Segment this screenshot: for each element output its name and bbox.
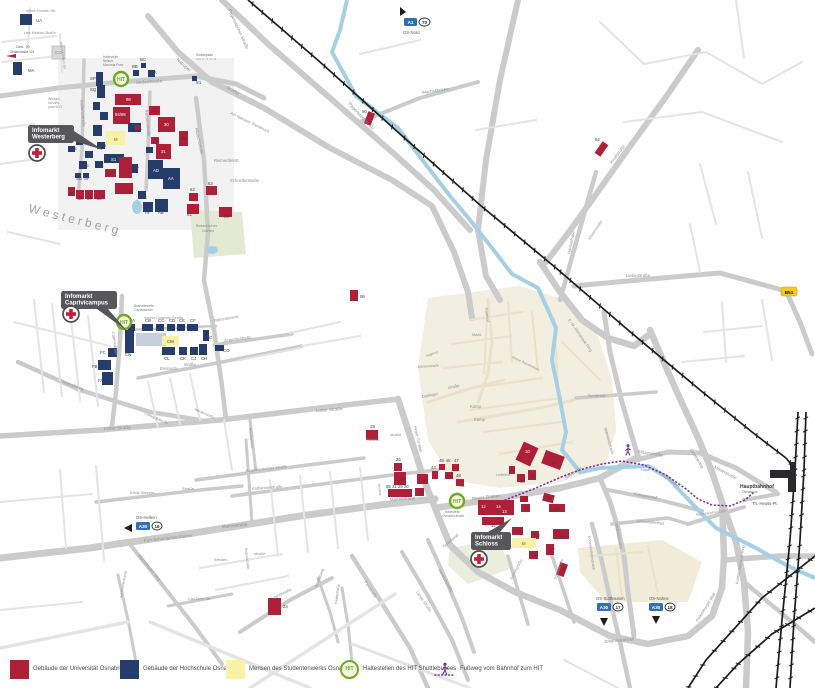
building-hs	[13, 62, 22, 75]
building-label: 02	[523, 496, 528, 501]
legend-item-mensa: Mensen des Studentenwerks Osnabrück	[226, 660, 357, 679]
building-label: BC	[140, 57, 146, 62]
building-label: AC	[141, 195, 147, 200]
motorway-exit-name: OS-Nahne	[649, 596, 669, 601]
building-uni	[394, 463, 402, 471]
map-canvas: UAMAICOSPBBBCBAS1SQ9892SN94/95SLSJSKMSHS…	[0, 0, 815, 688]
mensa-color-swatch	[226, 660, 245, 679]
street-label: Kamp	[470, 404, 482, 409]
street-label: Mandela-Platz	[103, 63, 124, 67]
building-uni	[350, 290, 358, 301]
building-label: 09	[510, 468, 515, 473]
building-label: SE	[98, 163, 104, 168]
building-label: S1	[111, 157, 117, 162]
street-label: Sophie-Charlotte-Straße	[144, 316, 183, 320]
building-label: 13	[502, 509, 507, 514]
street-label: Sedanplatz	[196, 53, 213, 57]
building-uni	[432, 471, 438, 479]
legend-label: Gebäude der Universität Osnabrück	[33, 666, 129, 672]
building-label: 39	[69, 191, 74, 196]
building-label: 11	[491, 523, 496, 528]
building-label: 03	[525, 506, 530, 511]
street-label: Geb. 70	[16, 45, 30, 49]
autobahn-badge-text: A30	[139, 524, 148, 529]
building-label: SF	[84, 176, 90, 181]
street-label: Liebigstraße	[626, 273, 651, 278]
street-label: Th.-Heuss-Pl.	[752, 501, 778, 506]
building-hs	[125, 330, 134, 353]
street-label: Roland-	[366, 437, 381, 442]
railway-tick	[777, 449, 778, 454]
legend-item-walk: Fußweg vom Bahnhof zum HIT	[434, 661, 543, 677]
building-label: 63	[208, 181, 213, 186]
building-label: 37	[87, 196, 92, 201]
pond	[132, 200, 142, 214]
street-label: Sedanstraße 115	[10, 50, 34, 54]
building-label: MA	[28, 68, 35, 73]
motorway-exit-name: OS-Nord	[403, 30, 420, 35]
building-label: 17	[550, 547, 555, 552]
building-label: 34	[153, 138, 158, 143]
building-uni	[268, 598, 281, 615]
infomarkt-tooltip-text: Westerberg	[32, 135, 65, 141]
building-label: AD	[153, 168, 159, 173]
building-label: SE	[71, 146, 77, 151]
street-label: Schoellerstraße	[230, 178, 260, 183]
building-label: 04	[555, 506, 560, 511]
building-label: 46	[446, 474, 451, 479]
exit-number-text: 18	[667, 605, 673, 610]
autobahn-badge-text: A30	[600, 605, 609, 610]
street-label: Garten	[202, 228, 214, 233]
building-label: FA	[98, 378, 103, 383]
building-label: 35	[128, 189, 133, 194]
building-label: UA	[36, 18, 42, 23]
motorway-exit-name: OS-Sutthausen	[596, 596, 625, 601]
building-label: SQ	[90, 87, 97, 92]
street-label: Ledenhof	[496, 473, 510, 477]
b51-badge-text: B51	[785, 290, 794, 296]
street-label: Schillerstr.	[588, 393, 606, 398]
building-label: 43	[431, 465, 436, 470]
exit-number-text: 17	[615, 605, 621, 610]
building-label: 55 21 25 20	[386, 484, 409, 489]
building-uni	[206, 186, 217, 195]
building-label: CG	[206, 335, 213, 340]
autobahn-badge-text: A1	[408, 20, 414, 25]
building-label: 30	[164, 122, 169, 127]
street-label: Hase	[641, 468, 650, 472]
building-label: 07	[531, 474, 536, 479]
building-label: 62	[190, 187, 195, 192]
building-label: 92	[95, 103, 100, 108]
street-label: Osnabrück	[742, 490, 758, 494]
red-cross-icon	[477, 554, 481, 564]
infomarkt-tooltip-text: Schloss	[475, 542, 499, 548]
building-label: 67	[134, 166, 139, 171]
building-label: CN	[125, 352, 131, 357]
building-label: 28	[399, 477, 404, 482]
building-label: S1	[196, 80, 202, 85]
street-label: Lise-Meitner-Straße	[24, 31, 56, 35]
building-label: CF	[190, 318, 196, 323]
building-hs	[177, 324, 185, 331]
street-label: Carl-Diem-Str.	[188, 597, 211, 601]
building-label: 48	[456, 473, 461, 478]
railway-tick	[756, 433, 757, 438]
building-label: 24	[283, 604, 288, 609]
building-uni	[439, 464, 445, 470]
hit-stop-text: HIT	[117, 77, 125, 83]
building-hs	[156, 324, 164, 331]
building-label: SH	[100, 143, 106, 148]
building-label: AF	[145, 210, 151, 215]
building-label: BB	[132, 64, 138, 69]
railway-tick	[767, 441, 768, 446]
building-label: 18	[533, 553, 538, 558]
red-cross-icon	[69, 309, 73, 319]
building-label: BA	[151, 70, 157, 75]
street-label: straße	[390, 432, 402, 437]
street-label: Albert-Einstein-Str.	[26, 9, 56, 13]
building-label: 15	[516, 529, 521, 534]
building-label: 14	[496, 504, 501, 509]
building-hs	[102, 372, 113, 385]
building-hs	[96, 72, 103, 86]
building-label: 44	[562, 566, 567, 571]
building-hs	[167, 324, 175, 331]
land-area	[190, 210, 246, 258]
building-hs	[97, 85, 105, 98]
building-label: 29	[370, 424, 375, 429]
street-label: Caprivistraße	[134, 308, 153, 312]
street-label: Markt	[472, 333, 482, 337]
building-label: 51	[552, 460, 557, 465]
infomarkt-tooltip-text: Infomarkt	[475, 535, 502, 541]
campus-map-page: UAMAICOSPBBBCBAS1SQ9892SN94/95SLSJSKMSHS…	[0, 0, 815, 688]
building-label: str.	[446, 458, 452, 463]
building-label: M	[522, 541, 526, 546]
building-label: SB	[83, 163, 89, 168]
pond	[206, 246, 218, 254]
building-label: 31	[161, 149, 166, 154]
building-label: 06	[360, 294, 365, 299]
building-hs	[162, 347, 175, 355]
legend-item-uni: Gebäude der Universität Osnabrück	[10, 660, 129, 679]
building-label: CO	[223, 348, 230, 353]
building-label: 52	[547, 496, 552, 501]
building-label: CH	[201, 356, 207, 361]
building-label: SP	[90, 76, 96, 81]
building-hs	[98, 360, 111, 370]
building-label: 47	[454, 458, 459, 463]
building-pale	[136, 333, 166, 346]
building-label: 54	[595, 137, 600, 142]
building-label: 27	[419, 490, 424, 495]
building-label: 41	[460, 483, 465, 488]
building-label: SJ	[96, 128, 101, 133]
building-label: SL	[137, 126, 143, 131]
building-label: 33	[152, 108, 157, 113]
building-hs	[133, 70, 139, 76]
hochschule-color-swatch	[120, 660, 139, 679]
building-label: 26	[396, 457, 401, 462]
building-label: 36	[97, 196, 102, 201]
building-hs	[142, 324, 153, 331]
street-label: Straße	[182, 486, 195, 491]
infomarkt-tooltip-text: Infomarkt	[32, 128, 59, 134]
legend-label: Fußweg vom Bahnhof zum HIT	[460, 666, 543, 672]
street-label: straße	[184, 362, 197, 367]
building-label: 61	[187, 212, 192, 217]
walking-person-icon	[434, 661, 456, 677]
building-label: 53	[535, 533, 540, 538]
building-label: 01	[560, 533, 565, 538]
exit-number-text: 70	[422, 20, 428, 25]
motorway-exit-name: OS-Hellern	[136, 515, 157, 520]
infomarkt-tooltip-text: Infomarkt	[65, 294, 92, 300]
building-label: AE	[147, 148, 153, 153]
building-label: 08	[520, 479, 525, 484]
street-label: park/ICO	[48, 105, 62, 109]
building-label: 94/95	[115, 112, 126, 117]
street-label: Ernst-Sievers-	[130, 490, 156, 495]
building-label: CL	[164, 356, 170, 361]
building-label: FC	[100, 350, 106, 355]
building-hs	[179, 347, 187, 355]
building-label: M	[114, 137, 118, 142]
building-label: AA	[168, 176, 174, 181]
uni-color-swatch	[10, 660, 29, 679]
street-label: Kamp	[474, 417, 486, 422]
building-label: 64	[224, 214, 229, 219]
street-label: Linie 11, 12, 21, 22	[196, 58, 217, 61]
building-hs	[20, 14, 32, 25]
building-hs	[190, 347, 198, 355]
building-label: SN	[101, 115, 107, 120]
building-label: 66	[109, 171, 114, 176]
building-label: 69	[182, 136, 187, 141]
building-uni	[452, 464, 459, 471]
building-label: CK	[180, 356, 186, 361]
street-label: straße	[254, 551, 266, 556]
street-label: Reimerdesstr.	[214, 158, 240, 163]
building-label: AB	[158, 210, 164, 215]
legend-item-hochschule: Gebäude der Hochschule Osnabrück	[120, 660, 242, 679]
red-cross-icon	[35, 148, 39, 158]
building-label: 22	[423, 478, 428, 483]
building-label: SD	[87, 153, 93, 158]
building-label: 38	[78, 196, 83, 201]
building-label: CM	[167, 339, 174, 344]
building-label: 12	[481, 504, 486, 509]
building-label: 98	[126, 97, 131, 102]
building-label: 45	[439, 458, 444, 463]
building-hs	[187, 324, 198, 331]
building-hs	[199, 344, 207, 355]
exit-number-text: 16	[154, 524, 160, 529]
autobahn-badge-text: A30	[652, 605, 661, 610]
street-label: Weiden-	[214, 557, 229, 562]
building-uni	[189, 193, 198, 201]
building-uni	[119, 157, 132, 178]
building-label: CJ	[191, 356, 196, 361]
hit-stop-icon: HIT	[340, 660, 359, 679]
building-hs	[141, 63, 146, 68]
map-legend: Gebäude der Universität Osnabrück Gebäud…	[0, 652, 815, 686]
hit-stop-text: HIT	[453, 499, 461, 505]
street-label: Bismarck-	[160, 366, 179, 371]
building-label: FB	[92, 364, 98, 369]
street-label: Osnabrückhalle	[442, 514, 464, 518]
building-label: SG	[76, 176, 83, 181]
building-label: 10	[525, 449, 530, 454]
